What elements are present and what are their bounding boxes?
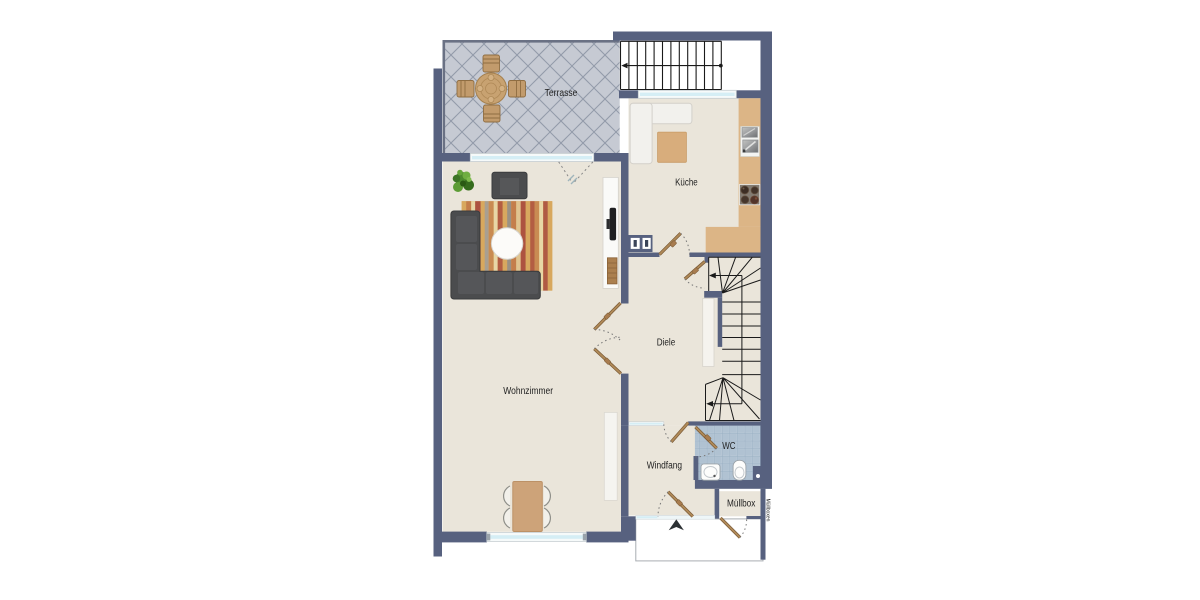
svg-text:Wohnzimmer: Wohnzimmer xyxy=(503,386,553,397)
svg-text:Müllbox: Müllbox xyxy=(727,499,755,510)
svg-text:Küche: Küche xyxy=(675,178,698,189)
svg-text:Terrasse: Terrasse xyxy=(545,88,578,99)
svg-text:Diele: Diele xyxy=(657,338,676,349)
svg-text:Windfang: Windfang xyxy=(647,461,682,472)
svg-text:WC: WC xyxy=(722,441,735,452)
svg-text:Müllboxen: Müllboxen xyxy=(765,499,771,522)
